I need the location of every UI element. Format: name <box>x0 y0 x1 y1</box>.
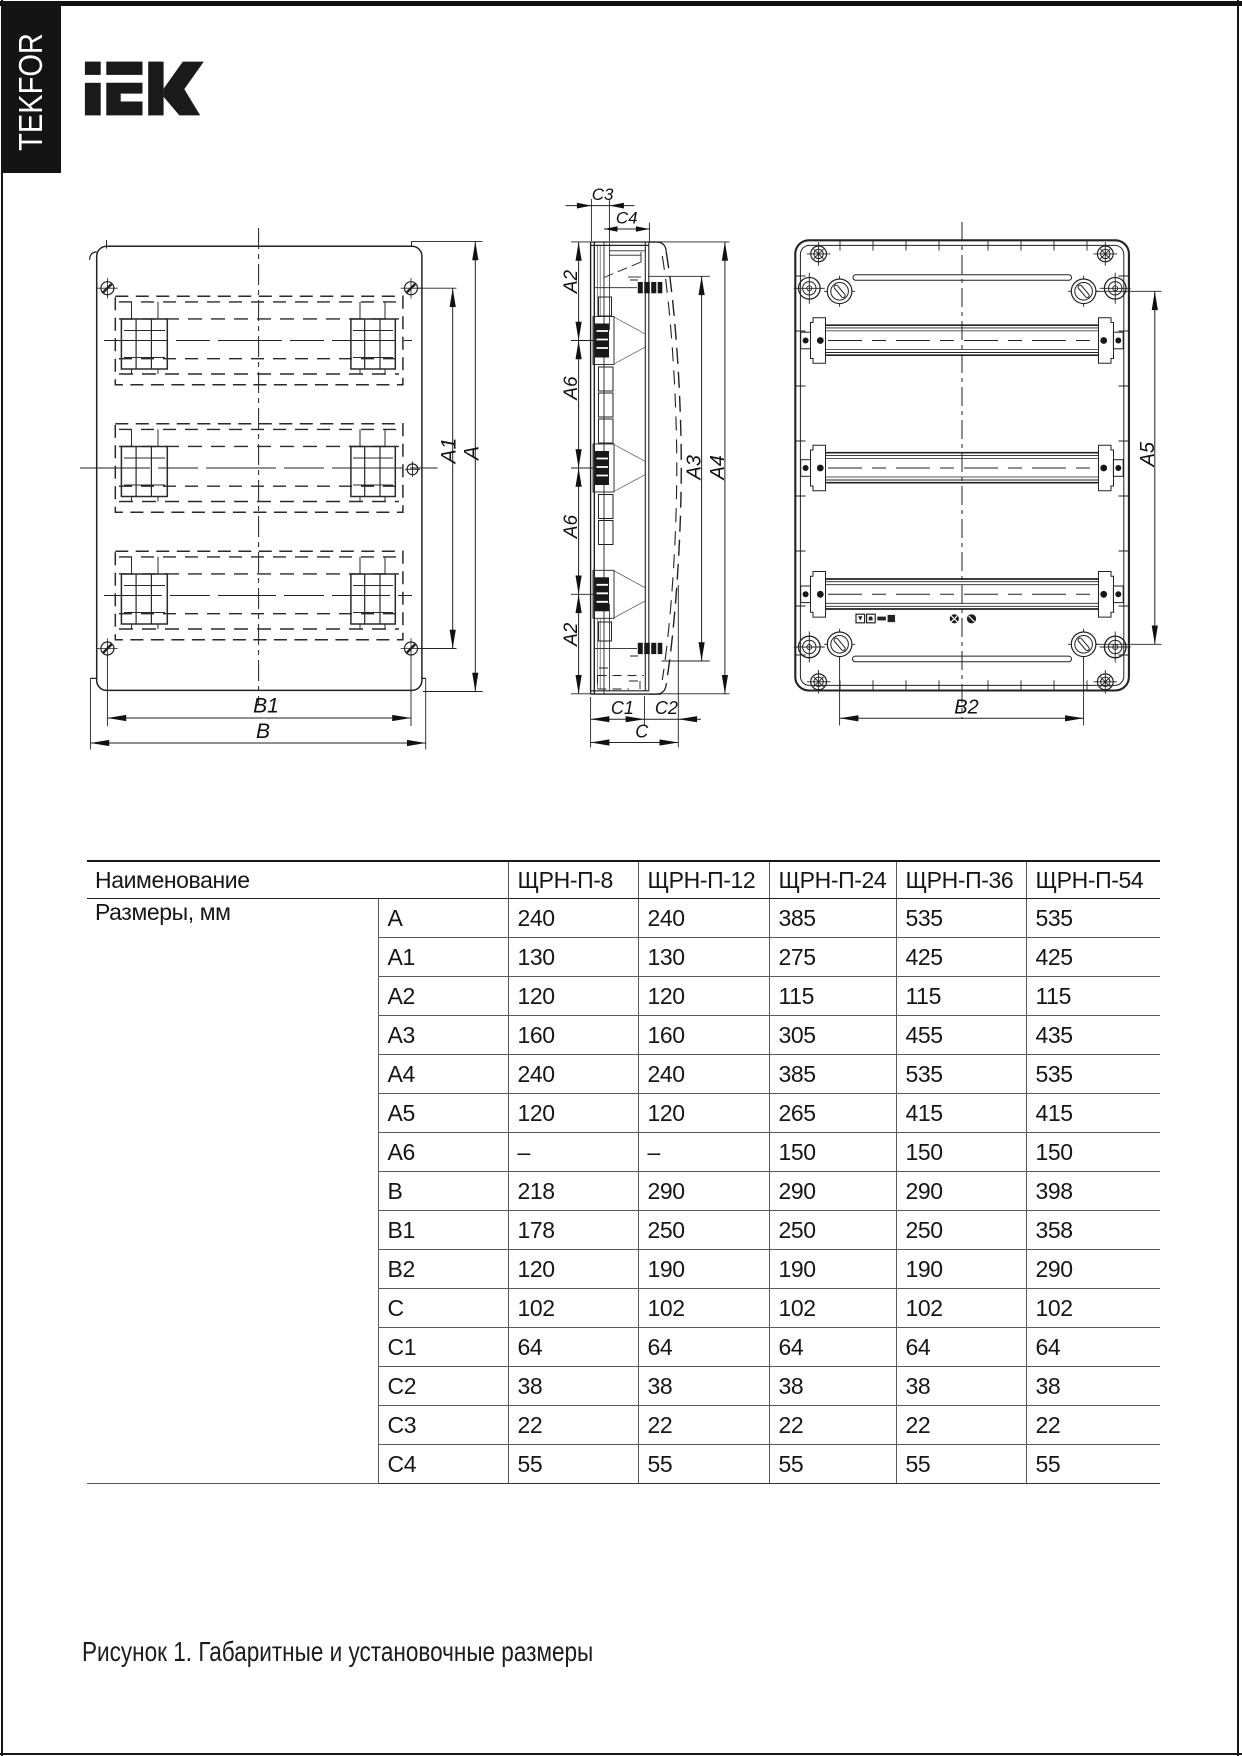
svg-text:A5: A5 <box>1137 441 1159 467</box>
svg-text:A2: A2 <box>561 269 582 294</box>
svg-text:A3: A3 <box>684 455 706 480</box>
svg-text:A2: A2 <box>561 622 582 647</box>
svg-text:A6: A6 <box>561 376 582 401</box>
svg-text:A: A <box>460 446 483 462</box>
svg-text:C3: C3 <box>592 185 614 204</box>
svg-text:B1: B1 <box>253 695 279 718</box>
svg-text:A1: A1 <box>438 438 461 466</box>
svg-text:C4: C4 <box>616 209 638 228</box>
svg-text:A4: A4 <box>707 455 729 480</box>
svg-text:C2: C2 <box>655 698 678 718</box>
svg-text:A6: A6 <box>561 514 582 539</box>
svg-text:C1: C1 <box>611 698 634 718</box>
svg-text:B2: B2 <box>954 697 978 719</box>
svg-text:B: B <box>256 720 270 743</box>
svg-text:C: C <box>635 722 649 742</box>
